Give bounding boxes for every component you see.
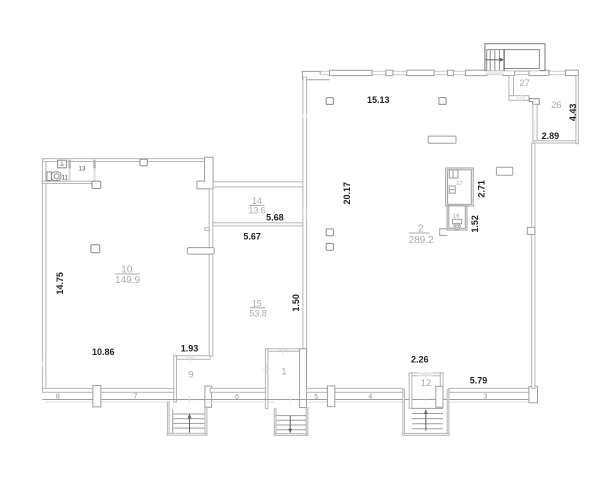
svg-text:11: 11 [62,174,69,181]
svg-text:6: 6 [235,394,239,401]
svg-text:26: 26 [551,99,561,110]
svg-text:15.13: 15.13 [367,95,390,105]
svg-text:27: 27 [519,77,529,88]
svg-text:1: 1 [281,365,286,376]
svg-text:9: 9 [188,368,193,379]
svg-text:1.52: 1.52 [470,215,480,233]
svg-text:2.89: 2.89 [542,131,560,141]
svg-text:7: 7 [134,394,138,401]
svg-text:289.2: 289.2 [409,235,434,246]
svg-text:5.79: 5.79 [470,376,488,386]
svg-text:5: 5 [314,394,318,401]
svg-text:14.75: 14.75 [55,272,65,295]
svg-text:13: 13 [78,165,86,172]
svg-text:53.8: 53.8 [250,309,267,319]
svg-text:1.93: 1.93 [181,344,199,354]
svg-text:3: 3 [483,394,487,401]
svg-text:14: 14 [252,196,262,206]
svg-text:149.9: 149.9 [115,275,140,286]
svg-text:4.43: 4.43 [568,104,578,122]
svg-text:4: 4 [368,394,372,401]
svg-text:16: 16 [453,213,459,219]
svg-text:8: 8 [56,394,60,401]
svg-text:15: 15 [252,298,262,308]
svg-text:2.26: 2.26 [411,355,429,365]
svg-text:5.68: 5.68 [266,213,284,223]
svg-text:20.17: 20.17 [342,182,352,205]
svg-text:1.50: 1.50 [291,294,301,312]
svg-text:2.71: 2.71 [476,180,486,198]
svg-text:10.86: 10.86 [92,347,115,357]
svg-text:17: 17 [456,181,462,187]
svg-text:13.6: 13.6 [248,206,265,216]
svg-text:5.67: 5.67 [243,232,261,242]
